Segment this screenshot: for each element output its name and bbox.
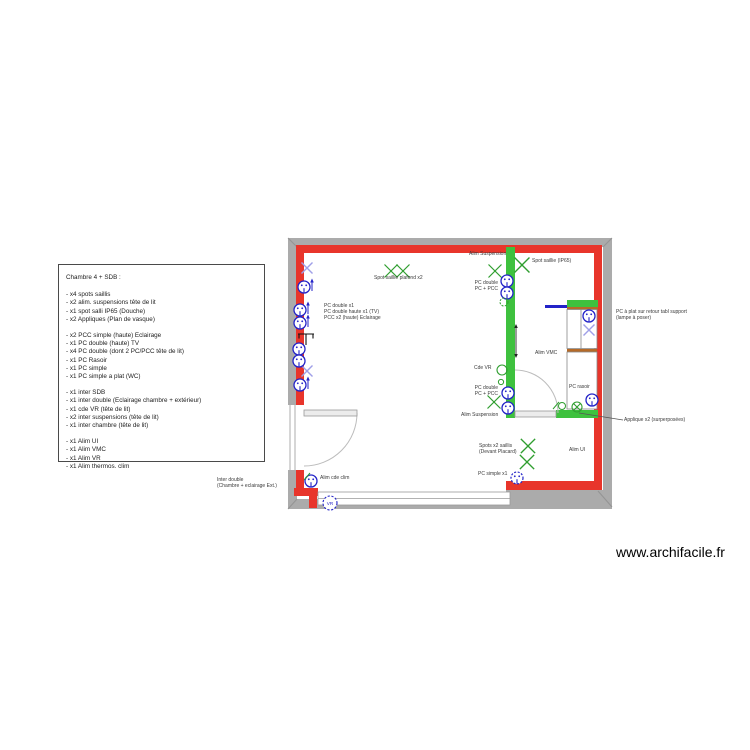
plan-label-pc-green-wall-bottom: PC double PC + PCC xyxy=(466,386,498,398)
plan-label-cde-vr: Cde VR xyxy=(474,366,492,372)
wall-partition-bottom xyxy=(556,410,598,418)
outlet-icon xyxy=(502,402,514,414)
plan-label-pc-left-wall: PC double x1 PC double haute x1 (TV) PCC… xyxy=(324,304,381,322)
shelf-green xyxy=(567,300,598,307)
plan-label-pc-simple-x1: PC simple x1 xyxy=(478,472,507,478)
window xyxy=(318,492,510,505)
vr-window-label: VR xyxy=(327,501,334,506)
plan-label-spot-saillie-plafond: Spot saillie plafond x2 xyxy=(374,276,423,282)
outlet-icon xyxy=(501,275,513,287)
outlet-icon xyxy=(502,387,514,399)
plan-label-spot-saillie-ip65: Spot saillie (IP65) xyxy=(532,259,571,265)
plan-label-alim-ui: Alim UI xyxy=(569,448,585,454)
outlet-icon xyxy=(293,355,305,367)
watermark: www.archifacile.fr xyxy=(616,544,725,560)
wall-step-v xyxy=(309,494,317,508)
outlet-icon xyxy=(501,287,513,299)
counter-edge-bottom xyxy=(567,349,597,352)
plan-label-inter-double: Inter double (Chambre + eclairage Ext.) xyxy=(217,478,277,490)
wall-top xyxy=(296,245,602,253)
outlet-icon xyxy=(583,310,595,322)
outlet-icon xyxy=(293,343,305,355)
plan-page: Chambre 4 + SDB : - x4 spots saillis - x… xyxy=(0,0,750,750)
plan-label-pc-rasoir: PC rasoir xyxy=(569,385,590,391)
plan-label-pc-green-wall-top: PC double PC + PCC xyxy=(466,281,498,293)
plan-label-applique-x2: Applique x2 (surperposées) xyxy=(624,418,685,424)
mirror-line xyxy=(545,305,567,308)
door-leaf xyxy=(515,411,556,417)
outlet-rasoir-icon xyxy=(586,394,598,406)
door-leaf xyxy=(304,410,357,416)
floor-plan-drawing: VR xyxy=(0,0,750,750)
plan-label-alim-cde-clim: Alim cde clim xyxy=(320,476,349,482)
vr-control: VR xyxy=(323,496,337,510)
plan-label-alim-suspension-bottom: Alim Suspension xyxy=(461,413,498,419)
plan-label-pc-a-plat: PC à plat sur retour tabl support (lampe… xyxy=(616,310,687,322)
outer-wall-band xyxy=(288,238,612,509)
outlet-planned-icon xyxy=(511,472,523,484)
plan-label-spots-devant-placard: Spots x2 saillis (Devant Placard) xyxy=(479,444,517,456)
plan-label-alim-vmc: Alim VMC xyxy=(535,351,557,357)
plan-label-alim-suspension-top: Alim Suspension xyxy=(469,252,506,258)
